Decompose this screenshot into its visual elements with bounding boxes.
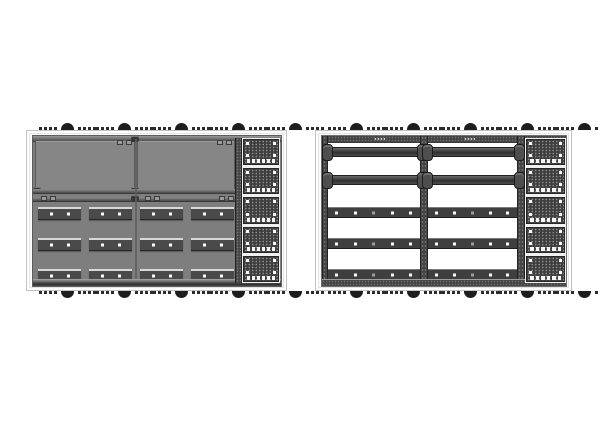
bar-screw-dot (152, 275, 155, 278)
rail-screw-dot (409, 273, 412, 276)
foot-pad (328, 291, 331, 294)
corner-dot (273, 242, 276, 245)
latch (41, 196, 47, 201)
vent-tab (257, 247, 260, 251)
vent-tab (558, 276, 562, 280)
foot-dome (175, 123, 188, 130)
corner-dot (273, 154, 276, 157)
bar-screw-dot (203, 275, 206, 278)
corner-dot (529, 154, 532, 157)
foot-pad (311, 127, 314, 130)
foot-pad (343, 291, 346, 294)
corner-dot (246, 142, 249, 145)
corner-dot (559, 154, 562, 157)
vent-tab (252, 188, 255, 192)
rail-screw-dot (409, 211, 412, 214)
mounting-foot-cluster (153, 120, 210, 130)
foot-pad (153, 291, 156, 294)
vent-tab (558, 218, 562, 222)
bar-screw-dot (67, 244, 70, 247)
mounting-feet-top (319, 120, 568, 130)
foot-dome (578, 123, 591, 130)
foot-pad (333, 291, 336, 294)
foot-dome (350, 123, 363, 130)
rail-perforation (464, 138, 475, 140)
mounting-feet-top (30, 120, 283, 130)
rail-screw-dot (335, 211, 338, 214)
mounting-rail (328, 238, 420, 249)
mounting-foot-cluster (385, 291, 442, 301)
mounting-bar (140, 207, 183, 220)
vent-tab (558, 188, 562, 192)
rail-latch-pair (41, 196, 56, 201)
vent-tab (536, 159, 540, 163)
foot-pad (447, 291, 450, 294)
vent-tab-row (247, 188, 275, 192)
latch (228, 196, 234, 201)
vent-tab (536, 276, 540, 280)
rail-screw-dot (506, 242, 509, 245)
foot-dome (61, 291, 74, 298)
rail-lug (514, 172, 525, 189)
foot-pad (39, 291, 42, 294)
vent-tab (552, 276, 556, 280)
mounting-foot-cluster (442, 120, 499, 130)
corner-dot (559, 271, 562, 274)
rail-screw-dot (435, 242, 438, 245)
foot-pad (457, 291, 460, 294)
rail-screw-dot (435, 211, 438, 214)
truss-rail (328, 147, 422, 157)
mounting-bar (140, 238, 183, 251)
corner-dot (246, 183, 249, 186)
vent-block (243, 168, 279, 194)
foot-pad (571, 291, 574, 294)
corner-dot (559, 259, 562, 262)
vent-tab (541, 276, 545, 280)
rail-screw-dot (391, 242, 394, 245)
corner-dot (559, 213, 562, 216)
foot-pad (145, 291, 148, 294)
rail-lug (422, 144, 433, 161)
foot-pad (101, 291, 104, 294)
foot-dome (61, 123, 74, 130)
foot-pad (306, 127, 309, 130)
vent-tab (530, 247, 534, 251)
foot-dome (118, 123, 131, 130)
bar-screw-dot (50, 244, 53, 247)
mounting-bar (38, 238, 81, 251)
vent-block (526, 227, 565, 253)
mounting-foot-cluster (267, 291, 324, 301)
corner-dot (273, 142, 276, 145)
rail-screw-dot (471, 242, 474, 245)
foot-pad (538, 291, 541, 294)
foot-pad (452, 291, 455, 294)
corner-dot (273, 259, 276, 262)
bar-screw-dot (152, 244, 155, 247)
cabinet-shell (26, 130, 287, 291)
rail-screw-dot (453, 273, 456, 276)
rail-screw-dot (453, 242, 456, 245)
corner-dot (246, 154, 249, 157)
rail-latch-pair (145, 196, 160, 201)
latch (154, 196, 160, 201)
foot-pad (377, 291, 380, 294)
rail-screw-dot (372, 211, 375, 214)
truss-rail (428, 175, 519, 185)
vent-tab-row (530, 218, 561, 222)
foot-dome (464, 123, 477, 130)
bar-screw-dot (169, 275, 172, 278)
mounting-feet-bottom (30, 291, 283, 301)
center-divider (135, 139, 137, 280)
bar-screw-dot (118, 213, 121, 216)
foot-pad (499, 291, 502, 294)
cabinet-body-frame (321, 135, 567, 287)
latch (117, 140, 123, 145)
foot-dome (289, 291, 302, 298)
foot-pad (249, 291, 252, 294)
foot-pad (202, 291, 205, 294)
vent-tab (252, 218, 255, 222)
vent-tab (530, 276, 534, 280)
latch (217, 140, 223, 145)
foot-pad (561, 291, 564, 294)
mounting-bar (89, 207, 132, 220)
mounting-foot-cluster (385, 120, 442, 130)
foot-dome (407, 123, 420, 130)
bar-screw-dot (101, 244, 104, 247)
vent-tab (262, 159, 265, 163)
vent-tab (541, 247, 545, 251)
foot-dome (289, 123, 302, 130)
bar-screw-dot (101, 213, 104, 216)
foot-dome (521, 291, 534, 298)
corner-dot (529, 230, 532, 233)
mounting-foot-cluster (96, 291, 153, 301)
foot-pad (210, 291, 213, 294)
foot-pad (254, 291, 257, 294)
foot-pad (338, 291, 341, 294)
vent-tab (267, 188, 270, 192)
corner-dot (246, 171, 249, 174)
vent-tab (558, 159, 562, 163)
latch (226, 140, 232, 145)
foot-pad (282, 291, 285, 294)
vent-tab (247, 188, 250, 192)
foot-pad (88, 291, 91, 294)
vent-tab (547, 159, 551, 163)
vent-tab (262, 276, 265, 280)
bar-screw-dot (67, 275, 70, 278)
mounting-foot-cluster (499, 120, 556, 130)
vent-tab (272, 247, 275, 251)
corner-dot (273, 200, 276, 203)
mounting-bar (89, 238, 132, 251)
foot-pad (267, 291, 270, 294)
foot-pad (372, 291, 375, 294)
foot-pad (595, 127, 598, 130)
vent-strip-post (235, 138, 242, 283)
vent-tab (530, 159, 534, 163)
rail-screw-dot (453, 211, 456, 214)
mounting-foot-cluster (442, 291, 499, 301)
vent-tab (247, 276, 250, 280)
foot-pad (481, 291, 484, 294)
vent-tab (262, 188, 265, 192)
corner-dot (529, 200, 532, 203)
vent-tab (252, 276, 255, 280)
bar-screw-dot (101, 275, 104, 278)
mounting-foot-cluster (210, 291, 267, 301)
corner-dot (559, 200, 562, 203)
foot-pad (168, 291, 171, 294)
vent-tab (252, 159, 255, 163)
render-canvas (0, 0, 600, 424)
corner-dot (559, 171, 562, 174)
foot-dome (464, 291, 477, 298)
rail-screw-dot (372, 273, 375, 276)
vent-tab (530, 218, 534, 222)
rail-screw-dot (391, 273, 394, 276)
foot-pad (556, 291, 559, 294)
corner-dot (246, 271, 249, 274)
foot-pad (548, 291, 551, 294)
vent-tab (536, 247, 540, 251)
vent-tab-row (530, 159, 561, 163)
bar-screw-dot (203, 213, 206, 216)
corner-dot (246, 230, 249, 233)
corner-dot (246, 259, 249, 262)
mounting-bar (191, 207, 234, 220)
vent-tab (262, 218, 265, 222)
mounting-foot-cluster (39, 120, 96, 130)
foot-pad (385, 291, 388, 294)
foot-pad (192, 291, 195, 294)
vent-tab (272, 159, 275, 163)
truss-rail (328, 175, 422, 185)
vent-tab-row (530, 247, 561, 251)
mounting-foot-cluster (39, 291, 96, 301)
mounting-foot-cluster (267, 120, 324, 130)
foot-pad (595, 291, 598, 294)
rail-screw-dot (435, 273, 438, 276)
foot-pad (442, 291, 445, 294)
mid-rail-upper (33, 189, 235, 194)
rail-screw-dot (335, 273, 338, 276)
vent-block (526, 256, 565, 282)
vent-tab (267, 276, 270, 280)
vent-tab (252, 247, 255, 251)
mounting-foot-cluster (96, 120, 153, 130)
corner-dot (529, 213, 532, 216)
rail-screw-dot (409, 242, 412, 245)
foot-pad (197, 291, 200, 294)
vent-tab (272, 276, 275, 280)
corner-dot (559, 242, 562, 245)
cabinet-covered (26, 130, 287, 291)
vent-tab (257, 218, 260, 222)
panel-latch-pair (217, 140, 232, 145)
vent-tab-row (247, 159, 275, 163)
foot-pad (491, 291, 494, 294)
vent-tab-row (530, 188, 561, 192)
foot-pad (367, 291, 370, 294)
mounting-foot-cluster (556, 291, 600, 301)
mounting-foot-cluster (328, 291, 385, 301)
foot-pad (96, 291, 99, 294)
mounting-feet-bottom (319, 291, 568, 301)
vent-tab (247, 218, 250, 222)
rail-lug (322, 144, 333, 161)
foot-pad (277, 291, 280, 294)
foot-pad (509, 291, 512, 294)
vent-tab (272, 218, 275, 222)
rail-screw-dot (506, 211, 509, 214)
vent-tab (541, 218, 545, 222)
foot-pad (225, 291, 228, 294)
latch (145, 196, 151, 201)
rail-screw-dot (335, 242, 338, 245)
corner-dot (246, 242, 249, 245)
vent-tab (558, 247, 562, 251)
rail-screw-dot (489, 211, 492, 214)
rail-screw-dot (471, 273, 474, 276)
panel-latch-pair (117, 140, 132, 145)
corner-dot (246, 213, 249, 216)
latch (219, 196, 225, 201)
bar-screw-dot (169, 213, 172, 216)
foot-pad (54, 291, 57, 294)
bar-screw-dot (50, 275, 53, 278)
truss-rail (428, 147, 519, 157)
vent-tab (272, 188, 275, 192)
foot-pad (566, 291, 569, 294)
corner-dot (559, 183, 562, 186)
vent-tab (267, 247, 270, 251)
vent-tab (552, 247, 556, 251)
vent-block (526, 168, 565, 194)
vent-strip (242, 138, 280, 283)
foot-pad (311, 291, 314, 294)
vent-block (526, 197, 565, 223)
foot-pad (44, 291, 47, 294)
vent-block (243, 256, 279, 282)
vent-tab (536, 218, 540, 222)
rail-screw-dot (354, 242, 357, 245)
foot-pad (424, 291, 427, 294)
vent-tab (257, 276, 260, 280)
corner-dot (273, 271, 276, 274)
corner-dot (273, 230, 276, 233)
latch (50, 196, 56, 201)
vent-tab (267, 218, 270, 222)
rail-lug (422, 172, 433, 189)
mounting-foot-cluster (210, 120, 267, 130)
foot-dome (521, 123, 534, 130)
foot-pad (140, 291, 143, 294)
foot-pad (49, 291, 52, 294)
corner-dot (529, 183, 532, 186)
foot-dome (118, 291, 131, 298)
vent-tab (262, 247, 265, 251)
foot-pad (78, 291, 81, 294)
foot-pad (395, 291, 398, 294)
mounting-bar (38, 207, 81, 220)
corner-dot (529, 171, 532, 174)
mounting-rail (328, 207, 420, 218)
foot-pad (135, 291, 138, 294)
bar-screw-dot (118, 244, 121, 247)
mounting-foot-cluster (328, 120, 385, 130)
cabinet-shell (315, 130, 572, 291)
foot-dome (232, 123, 245, 130)
foot-dome (232, 291, 245, 298)
vent-tab (541, 188, 545, 192)
foot-dome (175, 291, 188, 298)
rail-latch-pair (219, 196, 234, 201)
rail-screw-dot (489, 273, 492, 276)
rail-lug (514, 144, 525, 161)
cover-panel-left (35, 140, 135, 191)
foot-pad (111, 291, 114, 294)
mounting-foot-cluster (153, 291, 210, 301)
foot-dome (407, 291, 420, 298)
vent-tab (547, 276, 551, 280)
foot-pad (434, 291, 437, 294)
vent-tab (547, 218, 551, 222)
mounting-rail (428, 238, 517, 249)
bar-screw-dot (169, 244, 172, 247)
corner-dot (273, 213, 276, 216)
vent-tab (547, 188, 551, 192)
foot-pad (486, 291, 489, 294)
vent-tab (267, 159, 270, 163)
foot-pad (259, 291, 262, 294)
vent-tab-row (530, 276, 561, 280)
foot-pad (390, 291, 393, 294)
foot-pad (504, 291, 507, 294)
rail-lug (322, 172, 333, 189)
vent-tab (552, 218, 556, 222)
foot-dome (578, 291, 591, 298)
rail-screw-dot (372, 242, 375, 245)
mounting-foot-cluster (556, 120, 600, 130)
foot-pad (514, 291, 517, 294)
corner-dot (559, 142, 562, 145)
foot-pad (272, 291, 275, 294)
bar-screw-dot (203, 244, 206, 247)
vent-tab (530, 188, 534, 192)
vent-strip (525, 138, 566, 283)
bar-screw-dot (118, 275, 121, 278)
mounting-foot-cluster (499, 291, 556, 301)
foot-pad (158, 291, 161, 294)
vent-tab (541, 159, 545, 163)
corner-dot (529, 259, 532, 262)
foot-dome (350, 291, 363, 298)
rail-screw-dot (354, 211, 357, 214)
cover-panel-right (137, 140, 235, 191)
vent-block (243, 139, 279, 165)
vent-tab (247, 247, 250, 251)
rail-screw-dot (506, 273, 509, 276)
vent-block (243, 197, 279, 223)
rail-screw-dot (354, 273, 357, 276)
bar-screw-dot (152, 213, 155, 216)
foot-pad (83, 291, 86, 294)
